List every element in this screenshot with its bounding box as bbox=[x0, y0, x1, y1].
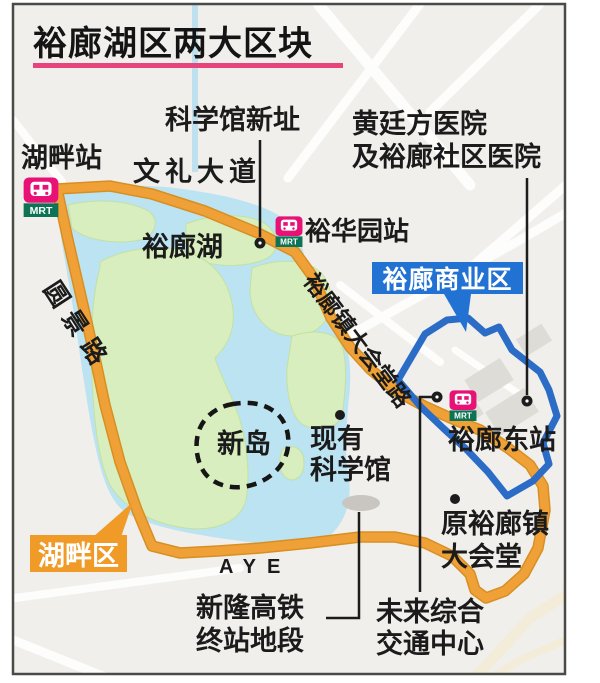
label-hospital-line2: 及裕廊社区医院 bbox=[352, 141, 541, 174]
business-district-label: 裕廊商业区 bbox=[372, 262, 523, 294]
label-chinese-garden-station: 裕华园站 bbox=[305, 216, 409, 247]
label-former-town-hall: 原裕廊镇 大会堂 bbox=[441, 508, 549, 574]
label-existing-science: 现有 科学馆 bbox=[310, 424, 391, 486]
label-boon-lay-way: 文礼大道 bbox=[133, 157, 261, 188]
train-icon: MRT bbox=[23, 177, 59, 217]
label-aye: AYE bbox=[219, 552, 291, 583]
page-title: 裕廊湖区两大区块 bbox=[33, 16, 313, 65]
label-jurong-east-station: 裕廊东站 bbox=[448, 425, 556, 456]
dot-hospital bbox=[522, 396, 533, 407]
title-underline bbox=[33, 63, 343, 68]
mrt-badge-text: MRT bbox=[454, 412, 472, 421]
mrt-icon-lakeside: MRT bbox=[23, 177, 59, 222]
map-figure: 裕廊湖区两大区块 湖畔站 裕华园站 裕廊东站 文礼大道 圆景路 裕廊镇大会堂路 … bbox=[0, 0, 600, 683]
lakeside-district-label: 湖畔区 bbox=[30, 535, 127, 572]
dot-science-new bbox=[255, 238, 266, 249]
label-hospital: 黄廷方医院 及裕廊社区医院 bbox=[352, 108, 541, 174]
mrt-icon-chinese-garden: MRT bbox=[275, 216, 303, 252]
label-hsr-line1: 新隆高铁 bbox=[196, 592, 304, 625]
mrt-badge-text: MRT bbox=[280, 238, 298, 247]
label-former-town-hall-line2: 大会堂 bbox=[441, 541, 549, 574]
science-centre-footprint bbox=[342, 495, 380, 511]
bottom-margin bbox=[0, 675, 600, 683]
label-future-hub-line2: 交通中心 bbox=[376, 628, 484, 660]
label-hsr-line2: 终站地段 bbox=[196, 625, 304, 658]
train-icon: MRT bbox=[449, 390, 477, 421]
label-future-hub: 未来综合 交通中心 bbox=[376, 596, 484, 660]
train-icon: MRT bbox=[275, 216, 303, 247]
right-margin bbox=[566, 0, 600, 683]
label-future-hub-line1: 未来综合 bbox=[376, 596, 484, 628]
label-hospital-line1: 黄廷方医院 bbox=[352, 108, 541, 141]
label-existing-science-line1: 现有 bbox=[310, 424, 391, 455]
label-science-centre-new: 科学馆新址 bbox=[165, 105, 300, 136]
label-jurong-lake: 裕廊湖 bbox=[142, 232, 223, 263]
left-margin bbox=[0, 0, 13, 683]
dot-former-town-hall bbox=[450, 494, 460, 504]
label-hsr-terminus: 新隆高铁 终站地段 bbox=[196, 592, 304, 658]
label-new-island: 新岛 bbox=[217, 429, 271, 460]
label-lakeside-station: 湖畔站 bbox=[21, 143, 102, 174]
mrt-icon-jurong-east: MRT bbox=[449, 390, 477, 426]
mrt-badge-text: MRT bbox=[30, 205, 53, 217]
label-existing-science-line2: 科学馆 bbox=[310, 455, 391, 486]
dot-existing-science bbox=[335, 410, 345, 420]
label-former-town-hall-line1: 原裕廊镇 bbox=[441, 508, 549, 541]
dot-future-hub bbox=[432, 392, 443, 403]
